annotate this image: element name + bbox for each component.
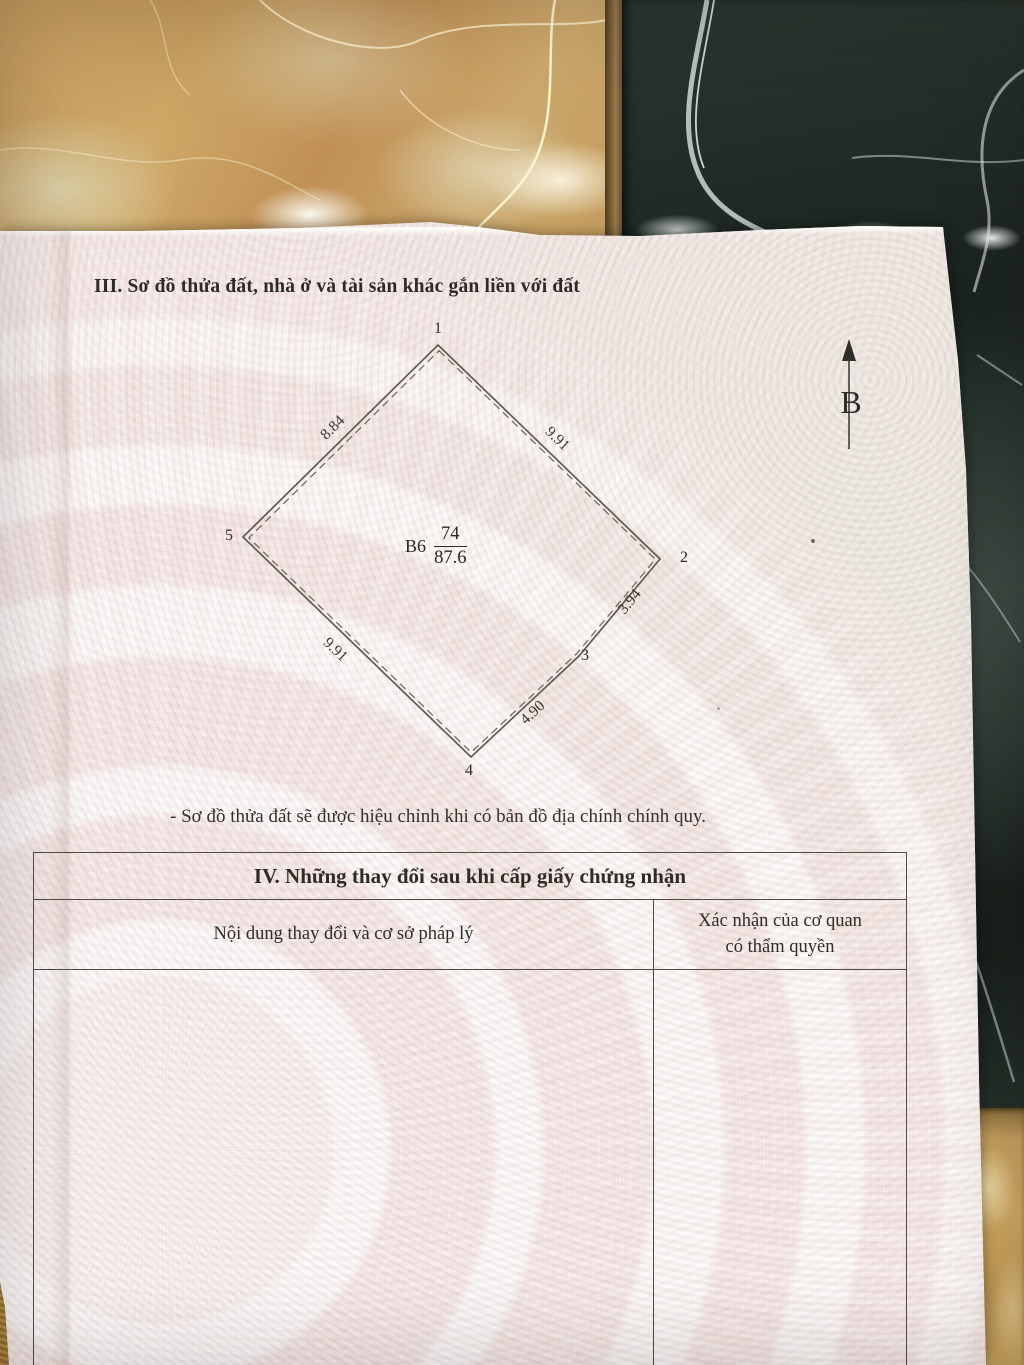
vertex-label-3: 3 (577, 647, 593, 665)
vertex-label-1: 1 (430, 320, 446, 338)
paper-shadow-wrap: III. Sơ đồ thửa đất, nhà ở và tài sản kh… (0, 0, 1024, 1365)
photo-of-land-certificate-page: III. Sơ đồ thửa đất, nhà ở và tài sản kh… (0, 0, 1024, 1365)
table-header-row: Nội dung thay đổi và cơ sở pháp lý Xác n… (34, 900, 906, 970)
table-body-row (34, 970, 906, 1365)
column-header-changes: Nội dung thay đổi và cơ sở pháp lý (34, 900, 654, 969)
parcel-number-over-area: 74 87.6 (434, 524, 467, 568)
column-header-authority-line1: Xác nhận của cơ quan (698, 909, 862, 935)
parcel-number: 74 (434, 524, 467, 546)
section-iii-heading: III. Sơ đồ thửa đất, nhà ở và tài sản kh… (94, 276, 580, 298)
paper-speck (811, 539, 815, 543)
north-arrow-label: B (834, 384, 868, 421)
block-label: B6 (405, 536, 426, 557)
vertex-label-2: 2 (676, 549, 692, 567)
empty-cell-authority (654, 970, 906, 1365)
diagram-footnote: - Sơ đồ thửa đất sẽ được hiệu chỉnh khi … (170, 806, 706, 828)
vertex-label-5: 5 (221, 527, 237, 545)
section-iv-table: IV. Những thay đổi sau khi cấp giấy chứn… (33, 852, 907, 1365)
certificate-paper: III. Sơ đồ thửa đất, nhà ở và tài sản kh… (0, 0, 1024, 1365)
column-header-authority-line2: có thẩm quyền (726, 935, 835, 961)
column-header-authority: Xác nhận của cơ quan có thẩm quyền (654, 900, 906, 969)
section-iv-heading: IV. Những thay đổi sau khi cấp giấy chứn… (34, 853, 906, 900)
paper-top-edge-highlight (0, 225, 952, 237)
parcel-identifier: B6 74 87.6 (405, 521, 467, 571)
vertex-label-4: 4 (461, 762, 477, 780)
paper-speck (717, 707, 720, 710)
empty-cell-changes (34, 970, 654, 1365)
parcel-area: 87.6 (434, 547, 466, 568)
